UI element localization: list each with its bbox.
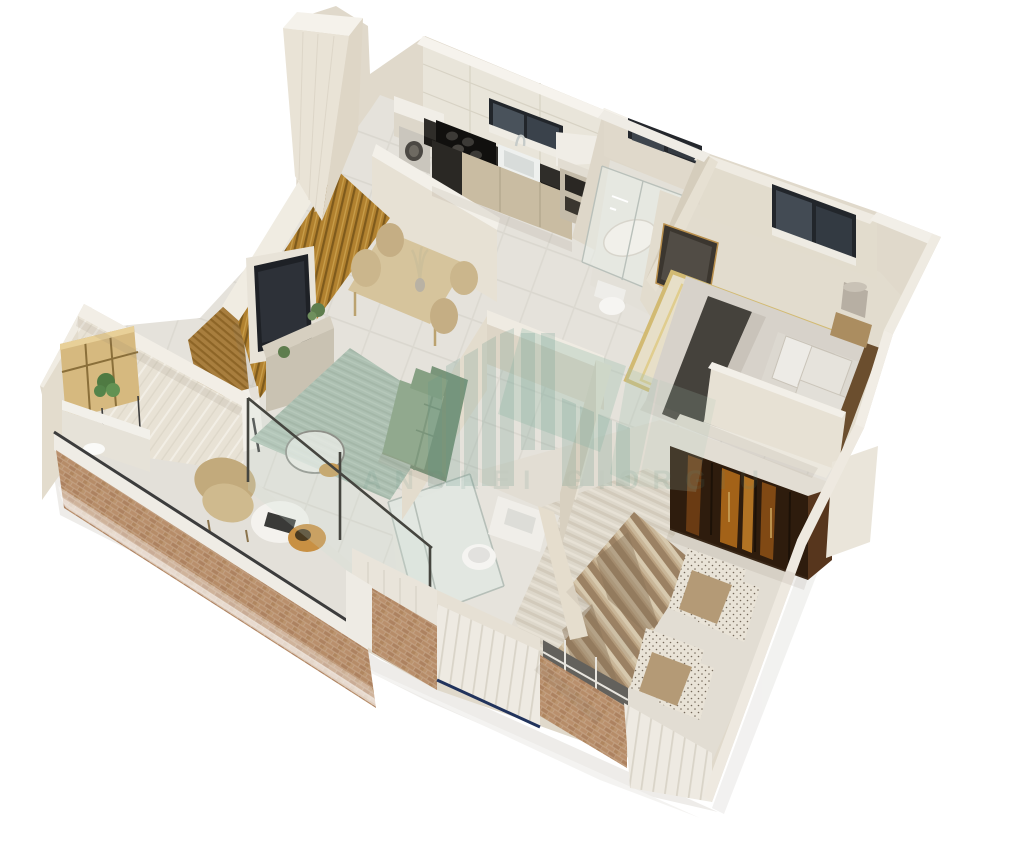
svg-text:ANDREI GIORGIU: ANDREI GIORGIU	[362, 465, 772, 495]
